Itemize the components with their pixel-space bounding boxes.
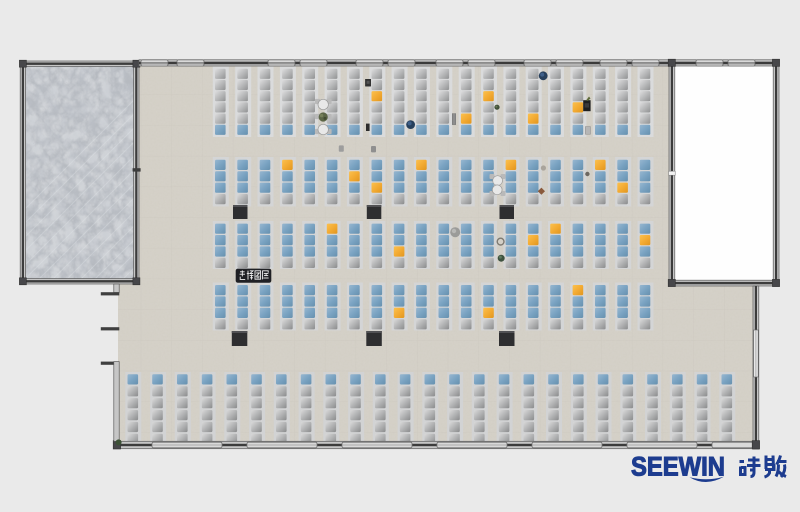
svg-text:SEEWIN: SEEWIN (631, 452, 725, 482)
